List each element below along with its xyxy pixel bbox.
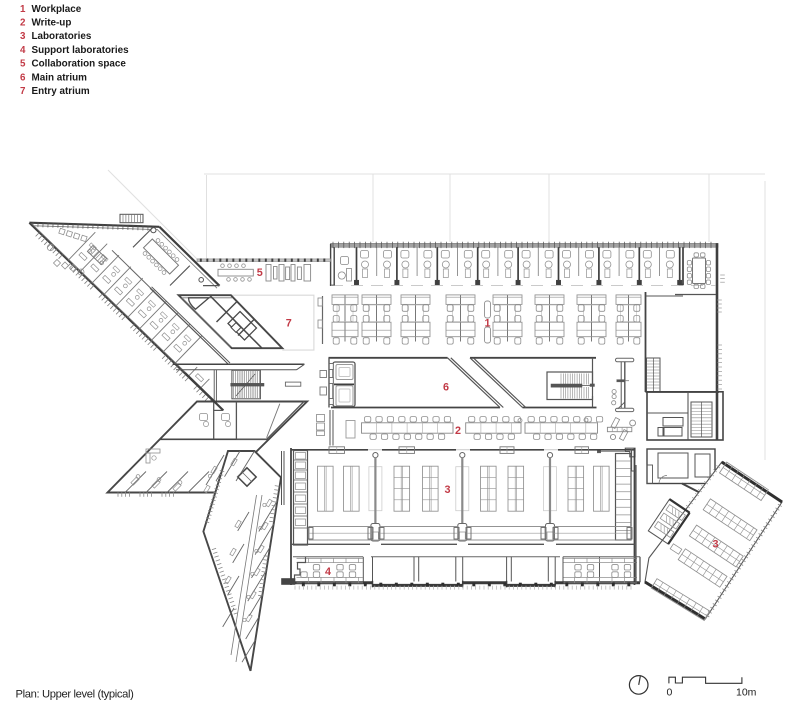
svg-text:1: 1 (484, 318, 490, 330)
svg-text:5: 5 (257, 267, 263, 279)
svg-text:3: 3 (20, 31, 26, 42)
svg-text:Plan: Upper level (typical): Plan: Upper level (typical) (16, 689, 135, 701)
svg-text:Support laboratories: Support laboratories (32, 45, 130, 56)
svg-text:Workplace: Workplace (32, 4, 82, 15)
svg-text:5: 5 (20, 59, 26, 70)
svg-text:6: 6 (20, 72, 26, 83)
svg-text:3: 3 (444, 484, 450, 496)
svg-text:10m: 10m (736, 687, 757, 699)
svg-text:3: 3 (712, 539, 718, 551)
svg-text:1: 1 (20, 4, 26, 15)
svg-text:7: 7 (286, 318, 292, 330)
svg-text:Laboratories: Laboratories (32, 31, 92, 42)
svg-text:Collaboration space: Collaboration space (32, 59, 127, 70)
svg-text:0: 0 (667, 687, 673, 699)
svg-text:7: 7 (20, 86, 26, 97)
svg-text:4: 4 (20, 45, 26, 56)
svg-text:2: 2 (20, 18, 26, 29)
svg-text:2: 2 (455, 425, 461, 437)
svg-text:Entry atrium: Entry atrium (32, 86, 90, 97)
svg-text:6: 6 (443, 382, 449, 394)
svg-text:4: 4 (325, 566, 331, 578)
svg-text:Main atrium: Main atrium (32, 72, 88, 83)
svg-text:Write-up: Write-up (32, 18, 72, 29)
